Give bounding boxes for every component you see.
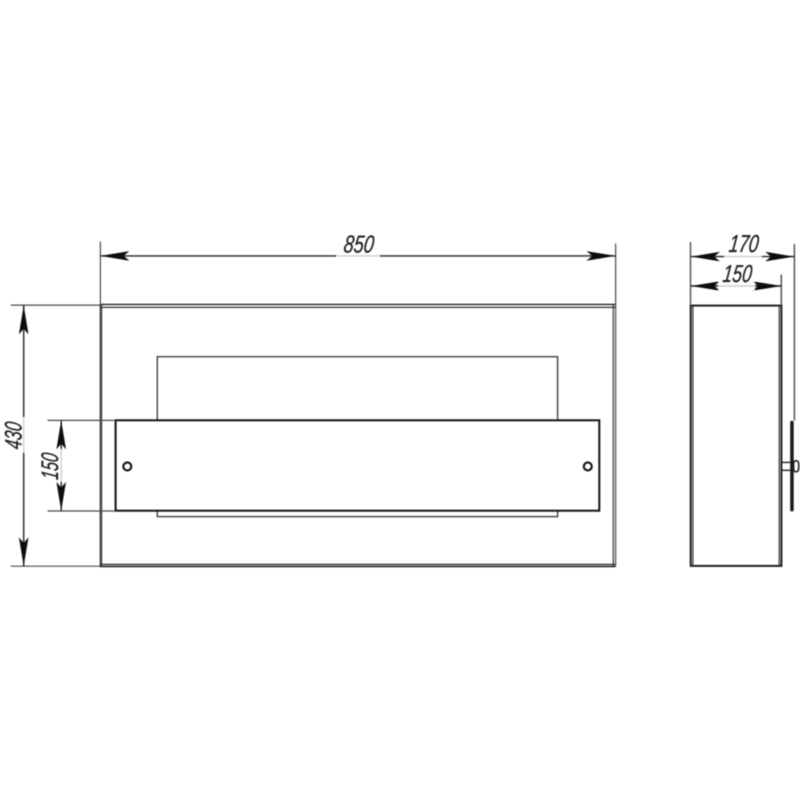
- svg-text:430: 430: [1, 420, 28, 451]
- svg-text:150: 150: [37, 451, 64, 481]
- svg-text:170: 170: [728, 231, 761, 258]
- svg-text:850: 850: [342, 231, 376, 258]
- svg-text:150: 150: [721, 261, 754, 288]
